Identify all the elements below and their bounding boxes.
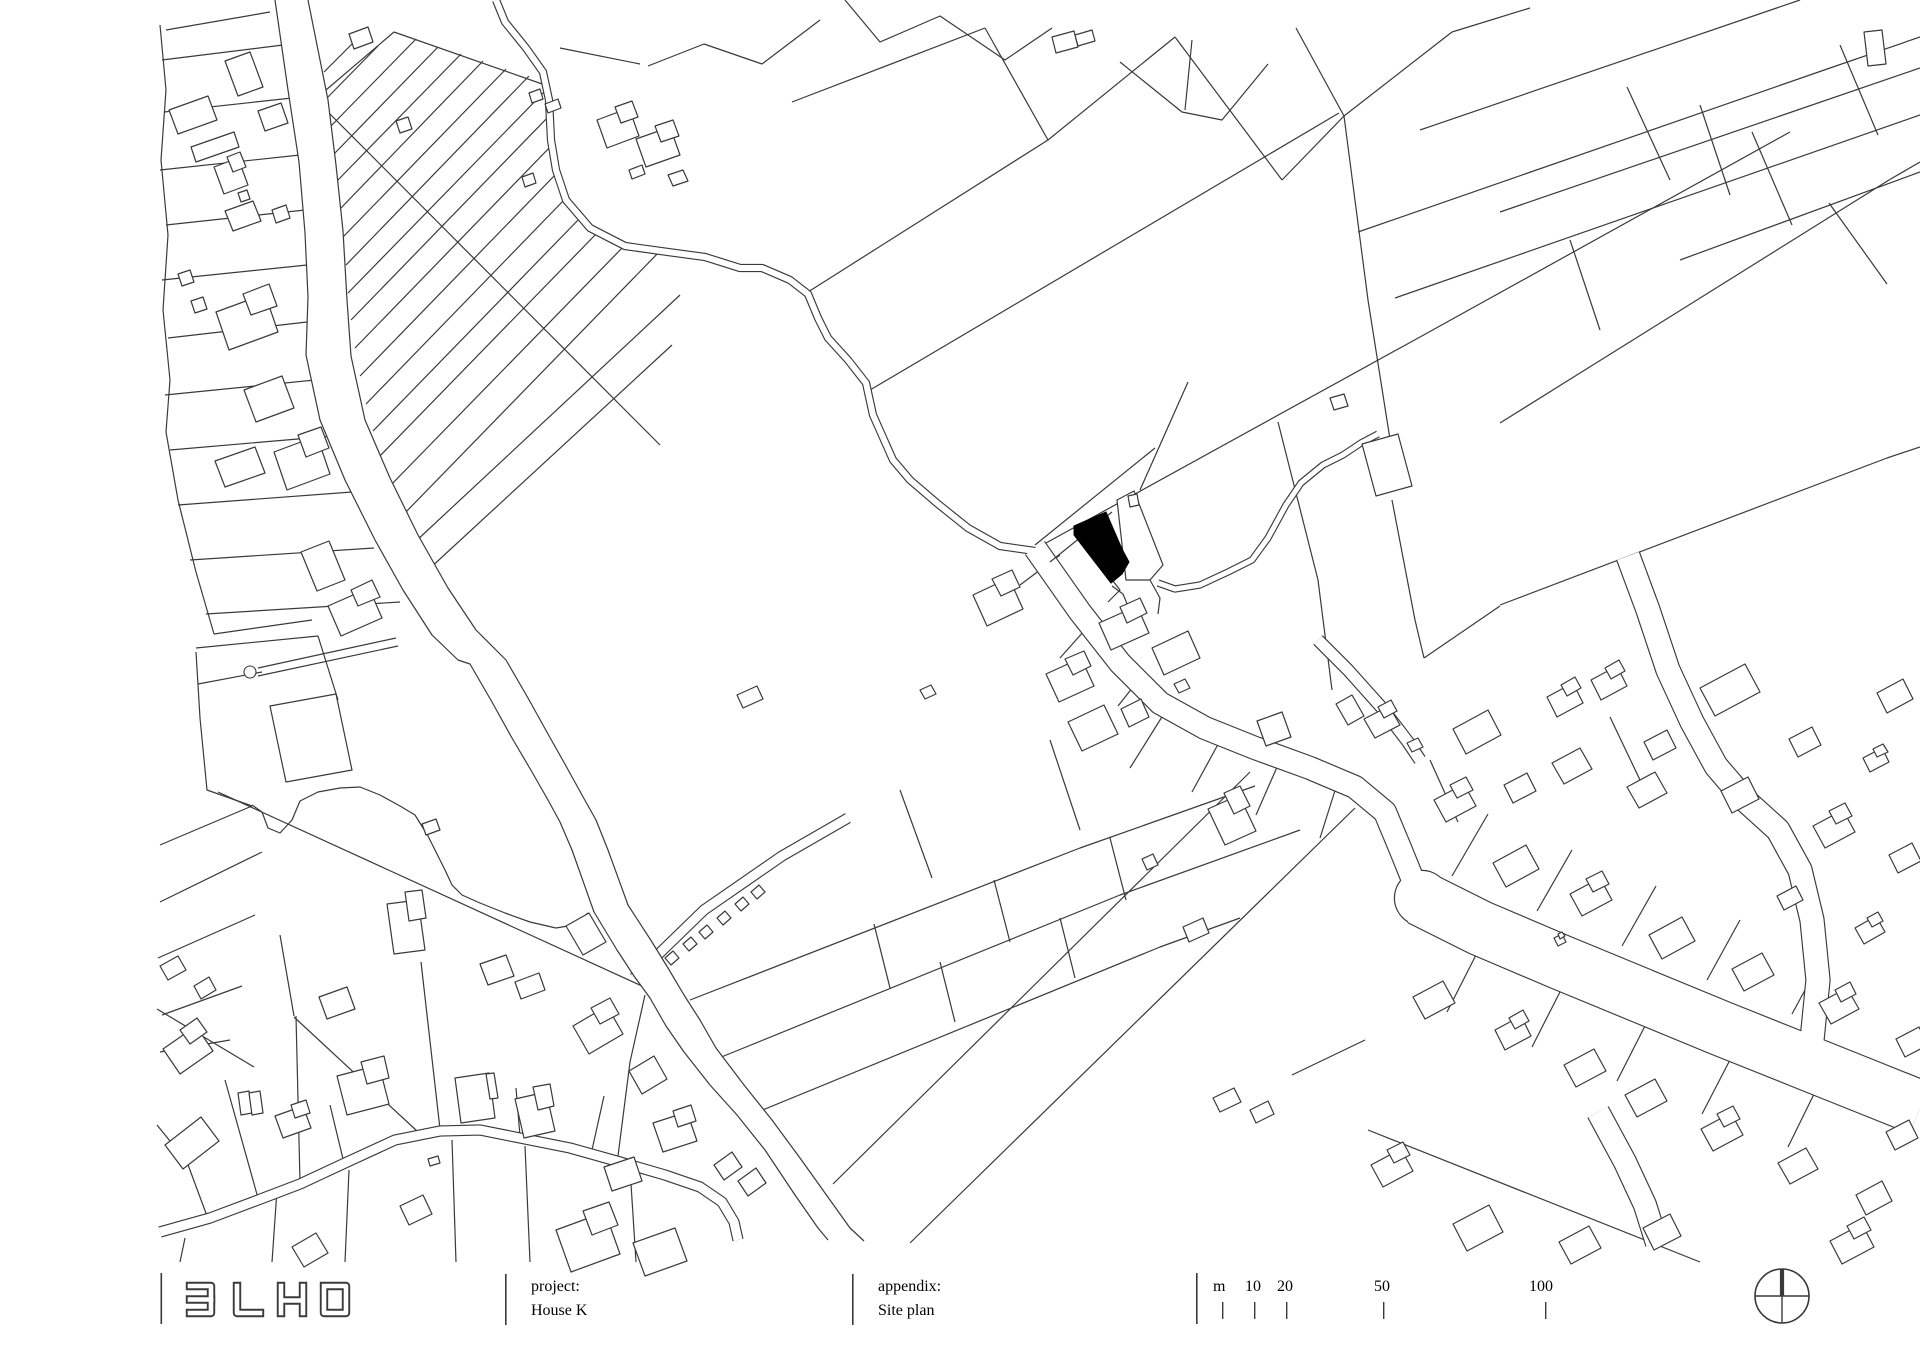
svg-text:project:: project: — [531, 1278, 580, 1295]
svg-text:Site plan: Site plan — [878, 1302, 934, 1319]
svg-text:20: 20 — [1277, 1278, 1293, 1295]
svg-text:10: 10 — [1245, 1278, 1261, 1295]
svg-text:100: 100 — [1529, 1278, 1553, 1295]
svg-text:m: m — [1213, 1278, 1226, 1295]
svg-text:50: 50 — [1374, 1278, 1390, 1295]
svg-text:House K: House K — [531, 1302, 588, 1319]
svg-text:appendix:: appendix: — [878, 1278, 941, 1295]
